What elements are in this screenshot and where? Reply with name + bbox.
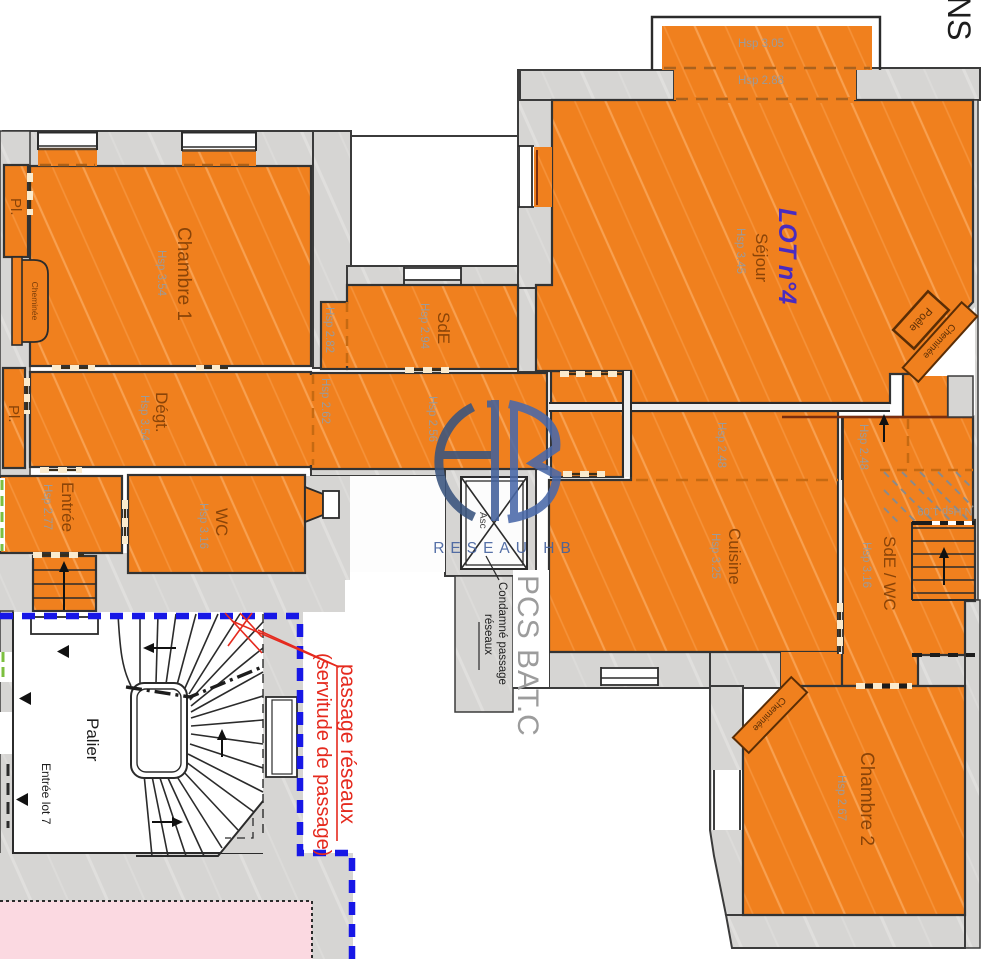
svg-text:NS: NS [941, 0, 977, 40]
svg-text:LOT n°4: LOT n°4 [773, 208, 801, 304]
svg-text:Hsp 2.56: Hsp 2.56 [426, 396, 438, 442]
svg-text:Cheminée: Cheminée [30, 282, 40, 321]
svg-text:Chambre 2: Chambre 2 [856, 752, 877, 846]
svg-text:Hsp 2.62: Hsp 2.62 [319, 378, 331, 424]
svg-text:Hsp 2.94: Hsp 2.94 [418, 303, 430, 350]
svg-text:Hsp 2.77: Hsp 2.77 [41, 484, 53, 530]
svg-text:Dégt.: Dégt. [152, 392, 171, 433]
svg-text:Pl.: Pl. [7, 198, 24, 216]
svg-text:réseaux: réseaux [482, 614, 494, 655]
svg-text:Hsp 2.48: Hsp 2.48 [857, 424, 869, 470]
svg-text:RESEAU HB: RESEAU HB [433, 540, 577, 557]
svg-text:(servitude de passage): (servitude de passage) [312, 653, 334, 856]
svg-text:Condamné passage: Condamné passage [496, 582, 508, 685]
svg-text:PCS BAT.C: PCS BAT.C [511, 575, 544, 737]
svg-text:Hsp 3.16: Hsp 3.16 [860, 542, 872, 588]
svg-text:WC: WC [212, 508, 231, 536]
svg-text:Hsp 2.67: Hsp 2.67 [835, 775, 847, 821]
svg-text:Cuisine: Cuisine [725, 528, 744, 585]
svg-text:Entrée lot 7: Entrée lot 7 [39, 763, 53, 825]
svg-text:SdE: SdE [434, 312, 453, 344]
svg-text:Hsp 3.25: Hsp 3.25 [709, 533, 721, 579]
svg-text:Pl.: Pl. [5, 405, 22, 423]
svg-text:Séjour: Séjour [752, 233, 771, 282]
svg-text:N.Hsp 1.09: N.Hsp 1.09 [917, 505, 972, 517]
svg-text:SdE / WC: SdE / WC [880, 536, 899, 611]
svg-text:Hsp 3.45: Hsp 3.45 [734, 228, 746, 274]
svg-text:Palier: Palier [83, 718, 102, 762]
svg-text:Hsp 3.16: Hsp 3.16 [197, 503, 209, 549]
svg-text:Hsp 3.54: Hsp 3.54 [155, 250, 167, 297]
svg-text:Hsp 2.48: Hsp 2.48 [715, 422, 727, 468]
svg-text:Hsp 3.54: Hsp 3.54 [138, 395, 150, 442]
svg-text:passage réseaux: passage réseaux [336, 664, 359, 824]
svg-text:Hsp 2.82: Hsp 2.82 [323, 307, 335, 353]
svg-text:Hsp 2.88: Hsp 2.88 [738, 75, 784, 87]
svg-text:Entrée: Entrée [58, 482, 77, 532]
svg-text:Chambre 1: Chambre 1 [173, 227, 194, 321]
svg-text:Asc: Asc [477, 512, 488, 529]
svg-text:Hsp 3.05: Hsp 3.05 [738, 38, 784, 50]
